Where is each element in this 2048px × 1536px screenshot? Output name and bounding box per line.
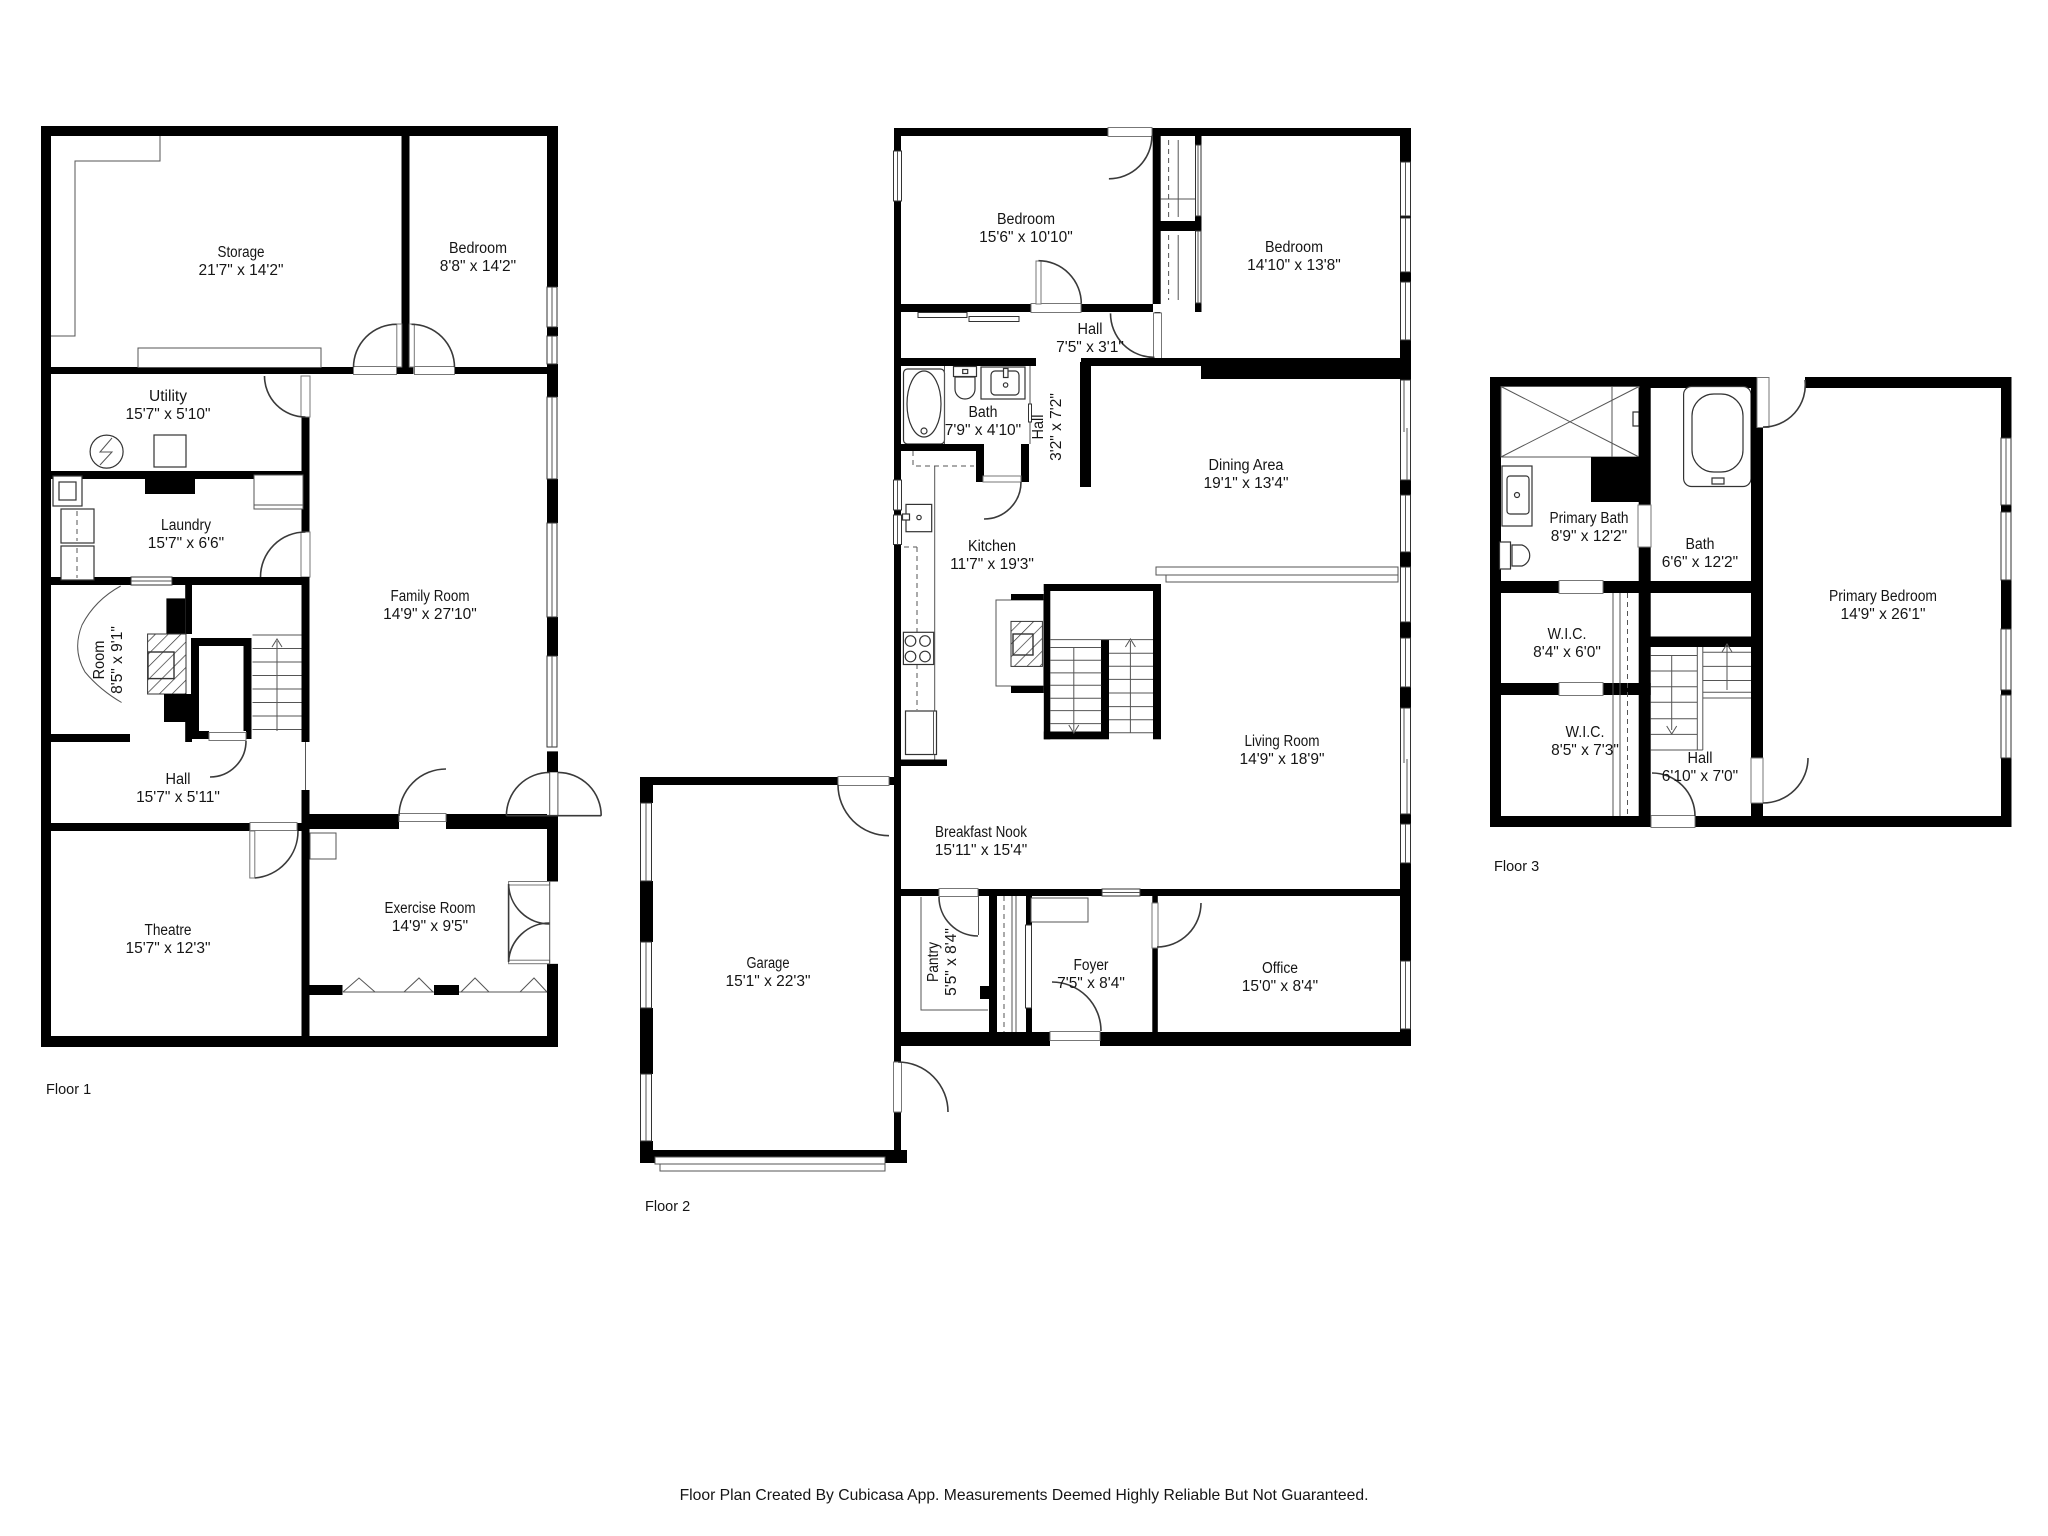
- svg-text:Room: Room: [91, 641, 108, 680]
- svg-text:Office: Office: [1262, 960, 1298, 977]
- svg-text:Pantry: Pantry: [925, 942, 942, 982]
- svg-text:Hall: Hall: [1030, 415, 1047, 440]
- svg-text:Hall: Hall: [1078, 321, 1103, 338]
- svg-text:Theatre: Theatre: [145, 922, 192, 939]
- svg-text:Primary Bedroom: Primary Bedroom: [1829, 588, 1937, 605]
- svg-text:6'6" x 12'2": 6'6" x 12'2": [1662, 554, 1738, 571]
- svg-text:Floor 3: Floor 3: [1494, 859, 1539, 875]
- svg-text:Utility: Utility: [149, 388, 187, 405]
- svg-text:15'7" x 5'10": 15'7" x 5'10": [125, 406, 210, 423]
- svg-text:Floor 1: Floor 1: [46, 1082, 91, 1098]
- svg-text:Floor 2: Floor 2: [645, 1199, 690, 1215]
- svg-text:19'1" x 13'4": 19'1" x 13'4": [1203, 475, 1288, 492]
- svg-text:Foyer: Foyer: [1074, 957, 1109, 974]
- svg-text:15'7" x 5'11": 15'7" x 5'11": [136, 789, 220, 806]
- svg-text:W.I.C.: W.I.C.: [1566, 724, 1605, 741]
- svg-text:8'9" x 12'2": 8'9" x 12'2": [1551, 528, 1627, 545]
- svg-text:Breakfast Nook: Breakfast Nook: [935, 824, 1027, 841]
- svg-text:Hall: Hall: [1688, 750, 1713, 767]
- svg-text:11'7" x 19'3": 11'7" x 19'3": [950, 556, 1034, 573]
- svg-text:15'7" x 6'6": 15'7" x 6'6": [148, 535, 224, 552]
- svg-text:14'10" x 13'8": 14'10" x 13'8": [1247, 257, 1341, 274]
- svg-text:Floor Plan Created By Cubicasa: Floor Plan Created By Cubicasa App. Meas…: [680, 1487, 1369, 1504]
- svg-text:21'7" x 14'2": 21'7" x 14'2": [198, 262, 283, 279]
- svg-text:14'9" x 26'1": 14'9" x 26'1": [1840, 606, 1925, 623]
- svg-text:7'9" x 4'10": 7'9" x 4'10": [945, 422, 1021, 439]
- svg-text:15'0" x 8'4": 15'0" x 8'4": [1242, 978, 1318, 995]
- svg-text:6'10" x 7'0": 6'10" x 7'0": [1662, 768, 1738, 785]
- svg-text:Bedroom: Bedroom: [997, 211, 1055, 228]
- svg-text:Kitchen: Kitchen: [968, 538, 1016, 555]
- svg-text:Hall: Hall: [166, 771, 191, 788]
- svg-text:5'5" x 8'4": 5'5" x 8'4": [943, 928, 960, 996]
- svg-text:Bedroom: Bedroom: [1265, 239, 1323, 256]
- svg-text:Living Room: Living Room: [1245, 733, 1320, 750]
- svg-text:W.I.C.: W.I.C.: [1548, 626, 1587, 643]
- svg-text:14'9" x 9'5": 14'9" x 9'5": [392, 918, 468, 935]
- svg-text:14'9" x 18'9": 14'9" x 18'9": [1239, 751, 1324, 768]
- svg-text:Storage: Storage: [218, 244, 265, 261]
- svg-text:Bedroom: Bedroom: [449, 240, 507, 257]
- svg-text:3'2" x 7'2": 3'2" x 7'2": [1048, 393, 1065, 461]
- svg-text:7'5" x 3'1": 7'5" x 3'1": [1056, 339, 1124, 356]
- svg-text:15'1" x 22'3": 15'1" x 22'3": [725, 973, 810, 990]
- svg-text:7'5" x 8'4": 7'5" x 8'4": [1057, 975, 1125, 992]
- svg-text:Bath: Bath: [1686, 536, 1715, 553]
- svg-text:8'4" x 6'0": 8'4" x 6'0": [1533, 644, 1601, 661]
- svg-text:Family Room: Family Room: [391, 588, 470, 605]
- svg-text:8'5" x 9'1": 8'5" x 9'1": [109, 626, 126, 694]
- svg-text:14'9" x 27'10": 14'9" x 27'10": [383, 606, 477, 623]
- svg-text:15'7" x 12'3": 15'7" x 12'3": [125, 940, 210, 957]
- svg-text:15'6" x 10'10": 15'6" x 10'10": [979, 229, 1073, 246]
- svg-text:Laundry: Laundry: [161, 517, 211, 534]
- svg-text:8'8" x 14'2": 8'8" x 14'2": [440, 258, 516, 275]
- svg-text:Bath: Bath: [969, 404, 998, 421]
- svg-text:Exercise Room: Exercise Room: [385, 900, 476, 917]
- svg-text:15'11" x 15'4": 15'11" x 15'4": [935, 842, 1027, 859]
- svg-text:Garage: Garage: [747, 955, 790, 972]
- svg-text:Dining Area: Dining Area: [1209, 457, 1284, 474]
- svg-text:Primary Bath: Primary Bath: [1550, 510, 1629, 527]
- svg-text:8'5" x 7'3": 8'5" x 7'3": [1551, 742, 1619, 759]
